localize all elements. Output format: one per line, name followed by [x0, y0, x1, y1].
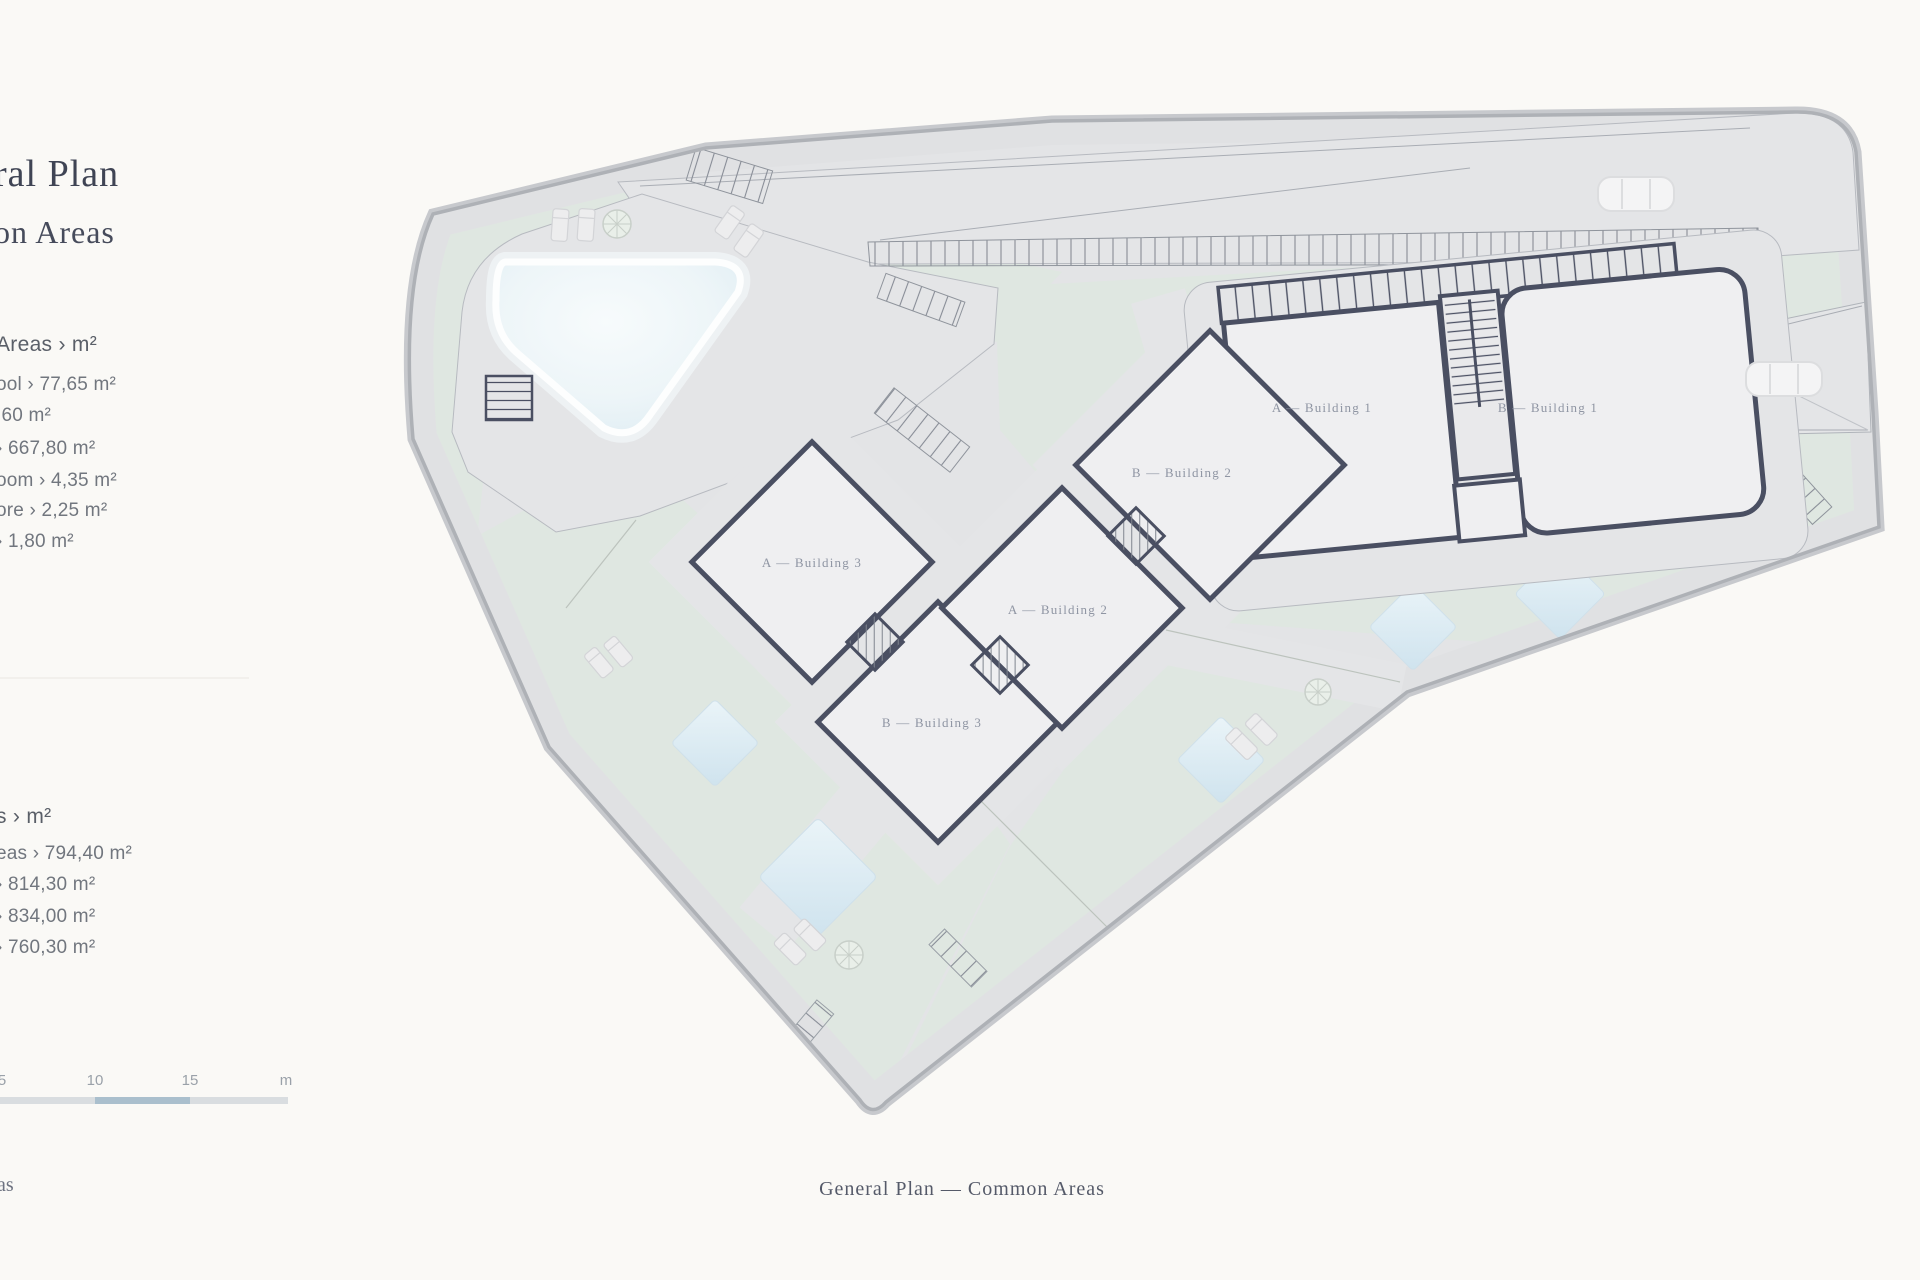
- building-label-a1: A — Building 1: [1272, 400, 1372, 416]
- car-icon: [1598, 177, 1674, 211]
- page-title-line2: on Areas: [0, 214, 115, 251]
- exterior-stair: [486, 376, 532, 420]
- building-label-b1: B — Building 1: [1498, 400, 1598, 416]
- area-item: ,60 m²: [0, 405, 51, 427]
- plot-item: eas › 794,40 m²: [0, 843, 132, 865]
- bottom-left-text-fragment: as: [0, 1174, 14, 1197]
- building-label-b3: B — Building 3: [882, 715, 982, 731]
- tree-icon: [835, 941, 863, 969]
- scale-bar-segment: [0, 1097, 95, 1104]
- scale-bar-segment: [190, 1097, 288, 1104]
- scale-tick: 15: [182, 1072, 199, 1089]
- sidebar-divider: [0, 677, 249, 679]
- plot-item: › 834,00 m²: [0, 906, 95, 928]
- areas-section-header: Areas › m²: [0, 333, 97, 357]
- scale-bar-segment-accent: [95, 1097, 190, 1104]
- tree-icon: [1305, 679, 1331, 705]
- plan-caption: General Plan — Common Areas: [819, 1178, 1105, 1201]
- scale-tick: 5: [0, 1072, 6, 1089]
- scale-tick: m: [280, 1072, 293, 1089]
- plots-section-header: s › m²: [0, 805, 51, 829]
- core-room: [1454, 479, 1525, 541]
- area-item: › 667,80 m²: [0, 438, 95, 460]
- building-label-a2: A — Building 2: [1008, 602, 1108, 618]
- building-label-a3: A — Building 3: [762, 555, 862, 571]
- tree-icon: [603, 210, 631, 238]
- building-label-b2: B — Building 2: [1132, 465, 1232, 481]
- plot-item: › 814,30 m²: [0, 874, 95, 896]
- plot-item: › 760,30 m²: [0, 937, 95, 959]
- scale-tick: 10: [87, 1072, 104, 1089]
- area-item: ore › 2,25 m²: [0, 500, 107, 522]
- area-item: ool › 77,65 m²: [0, 374, 116, 396]
- area-item: oom › 4,35 m²: [0, 470, 117, 492]
- page-title-line1: ral Plan: [0, 152, 119, 196]
- car-icon: [1746, 362, 1822, 396]
- area-item: › 1,80 m²: [0, 531, 74, 553]
